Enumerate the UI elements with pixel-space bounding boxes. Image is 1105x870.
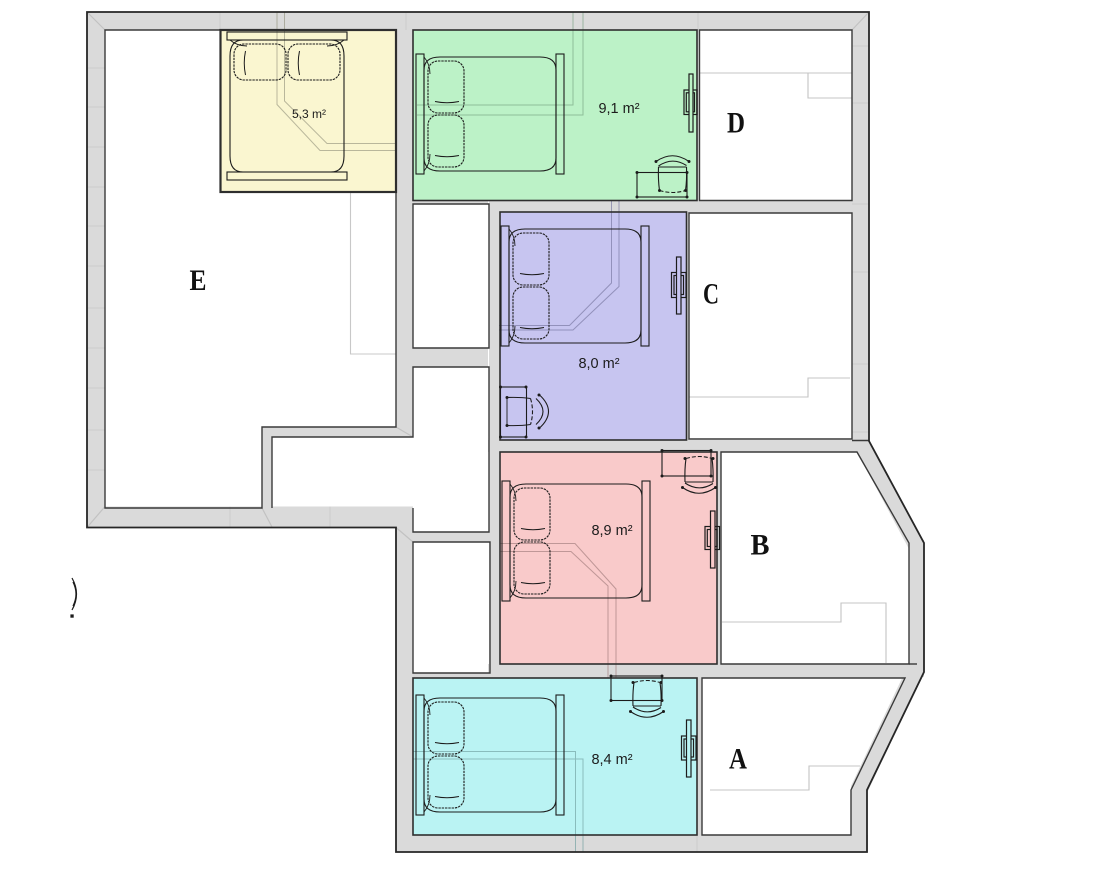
svg-text:8,9 m²: 8,9 m² [591, 523, 632, 539]
svg-text:8,4 m²: 8,4 m² [591, 752, 632, 768]
svg-text:E: E [190, 264, 207, 297]
svg-text:C: C [703, 278, 719, 311]
svg-text:D: D [727, 107, 745, 140]
svg-text:9,1 m²: 9,1 m² [598, 101, 639, 117]
svg-text:8,0 m²: 8,0 m² [578, 356, 619, 372]
svg-text:A: A [729, 743, 747, 776]
svg-text:B: B [751, 529, 770, 562]
svg-text:5,3 m²: 5,3 m² [292, 107, 326, 121]
